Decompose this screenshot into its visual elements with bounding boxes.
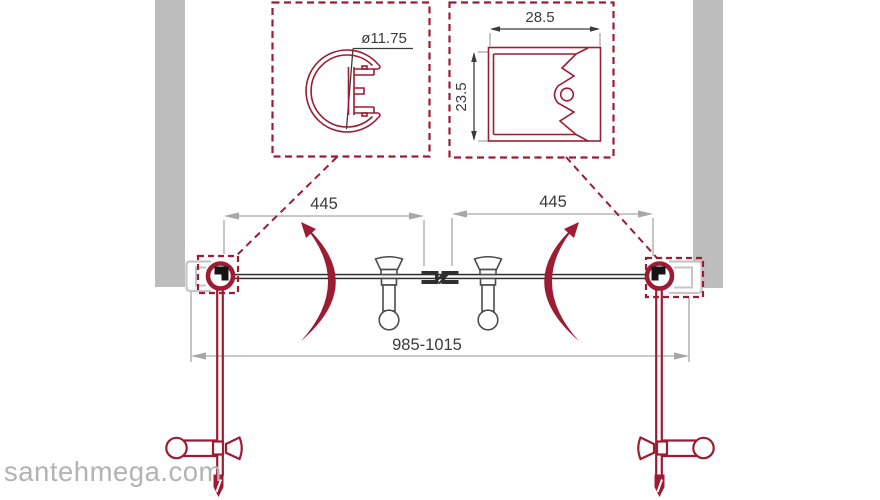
detail-box-wall-profile: 28.5 23.5 [450,3,614,158]
left-pivot-hinge [208,264,233,289]
shower-door-technical-drawing: 985-1015 445 445 [0,0,880,500]
overall-width-label: 985-1015 [392,336,462,354]
knob-profile-cross-section [306,50,380,132]
wall-profile-width-label: 28.5 [525,9,554,26]
magnetic-closure [422,271,459,284]
knob-profile-diameter-label: ø11.75 [361,30,407,47]
right-wall [693,0,723,288]
right-door-knob [475,257,502,330]
right-door-width-label: 445 [539,193,567,211]
left-wall [155,0,185,287]
left-door-knob [376,257,403,330]
wall-profile-height-label: 23.5 [453,82,470,111]
right-floor-pivot-hardware [638,438,713,498]
watermark-text: santehmega.com [4,456,222,487]
detail-box-knob-profile: ø11.75 [273,3,430,157]
wall-profile-cross-section [489,48,601,142]
right-detail-leader-line [566,157,657,258]
drawing-canvas: 985-1015 445 445 [0,0,880,500]
left-door-swing-arrow [301,222,336,341]
left-door-width-label: 445 [310,195,338,213]
right-door-swing-arrow [544,222,579,341]
right-pivot-hinge [647,264,672,289]
overall-width-dimension: 985-1015 [191,292,689,362]
